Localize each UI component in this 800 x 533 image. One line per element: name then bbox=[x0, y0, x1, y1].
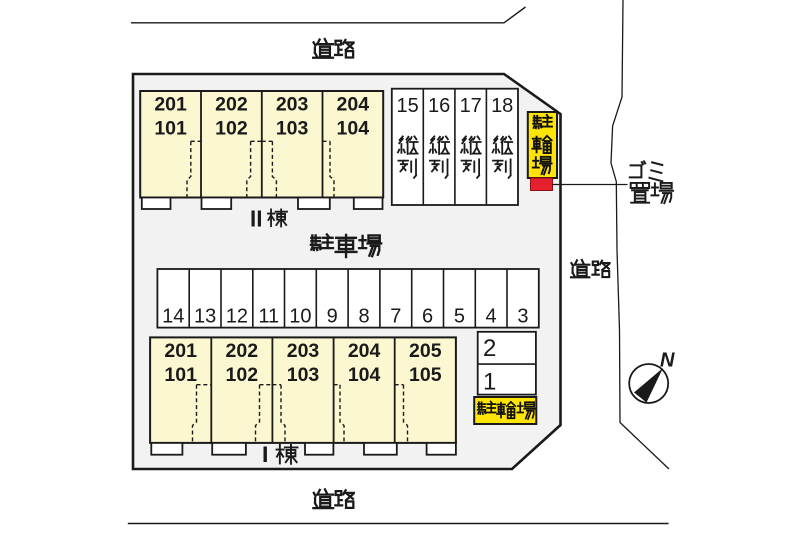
svg-text:17: 17 bbox=[460, 95, 482, 117]
svg-text:104: 104 bbox=[337, 117, 370, 139]
svg-text:18: 18 bbox=[491, 95, 513, 117]
svg-text:16: 16 bbox=[428, 95, 450, 117]
svg-text:15: 15 bbox=[396, 95, 418, 117]
svg-text:8: 8 bbox=[358, 306, 369, 328]
svg-text:N: N bbox=[660, 350, 675, 372]
svg-text:1: 1 bbox=[483, 369, 496, 396]
svg-text:101: 101 bbox=[164, 364, 197, 386]
svg-text:201: 201 bbox=[164, 340, 197, 362]
svg-text:11: 11 bbox=[258, 306, 279, 328]
svg-text:14: 14 bbox=[162, 306, 184, 328]
svg-text:6: 6 bbox=[422, 306, 433, 328]
svg-text:7: 7 bbox=[390, 306, 401, 328]
svg-text:203: 203 bbox=[276, 93, 309, 115]
svg-text:105: 105 bbox=[409, 364, 442, 386]
svg-text:102: 102 bbox=[226, 364, 259, 386]
svg-text:4: 4 bbox=[486, 306, 497, 328]
svg-text:103: 103 bbox=[276, 117, 309, 139]
svg-text:201: 201 bbox=[154, 93, 187, 115]
svg-text:5: 5 bbox=[454, 306, 465, 328]
svg-text:203: 203 bbox=[287, 340, 320, 362]
svg-text:205: 205 bbox=[409, 340, 442, 362]
svg-text:202: 202 bbox=[226, 340, 259, 362]
svg-text:104: 104 bbox=[348, 364, 381, 386]
svg-text:3: 3 bbox=[517, 306, 528, 328]
svg-text:102: 102 bbox=[215, 117, 248, 139]
svg-text:202: 202 bbox=[215, 93, 248, 115]
svg-text:9: 9 bbox=[327, 306, 338, 328]
svg-text:12: 12 bbox=[226, 306, 248, 328]
svg-text:204: 204 bbox=[348, 340, 381, 362]
svg-text:10: 10 bbox=[289, 306, 311, 328]
svg-text:2: 2 bbox=[483, 335, 496, 362]
svg-text:13: 13 bbox=[194, 306, 216, 328]
svg-text:103: 103 bbox=[287, 364, 320, 386]
svg-text:101: 101 bbox=[154, 117, 187, 139]
svg-text:204: 204 bbox=[337, 93, 370, 115]
